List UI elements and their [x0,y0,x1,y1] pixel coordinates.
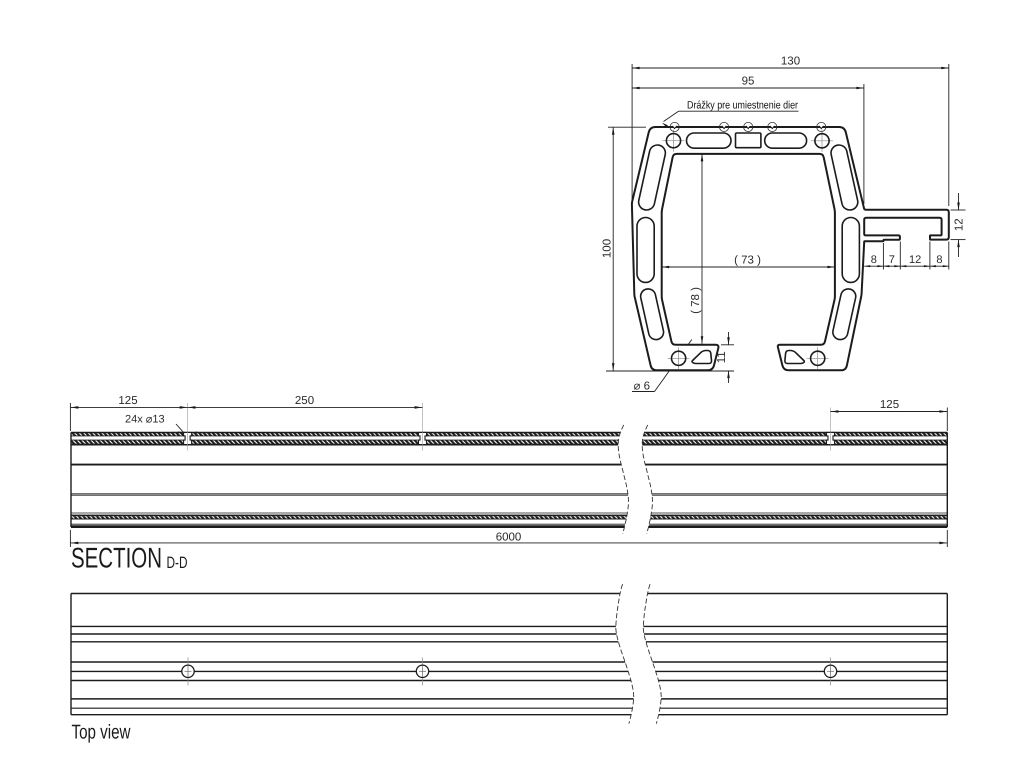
svg-text:6000: 6000 [496,532,522,544]
svg-text:12: 12 [954,218,966,231]
svg-text:SECTION: SECTION [71,543,162,575]
svg-text:100: 100 [602,239,614,258]
svg-text:130: 130 [781,56,800,68]
svg-text:125: 125 [880,399,899,411]
svg-text:250: 250 [295,395,314,407]
svg-text:24x ⌀13: 24x ⌀13 [125,414,165,426]
svg-text:( 78 ): ( 78 ) [690,287,702,314]
svg-text:95: 95 [742,76,755,88]
svg-text:12: 12 [909,254,921,266]
svg-text:( 73 ): ( 73 ) [734,255,761,267]
svg-text:Drážky pre umiestnenie dier: Drážky pre umiestnenie dier [687,100,798,112]
svg-text:8: 8 [936,254,942,266]
svg-text:D-D: D-D [167,554,188,572]
svg-text:7: 7 [889,254,895,266]
svg-text:8: 8 [871,254,877,266]
svg-text:125: 125 [118,395,137,407]
svg-text:Top view: Top view [72,722,131,744]
svg-text:⌀ 6: ⌀ 6 [634,381,651,393]
